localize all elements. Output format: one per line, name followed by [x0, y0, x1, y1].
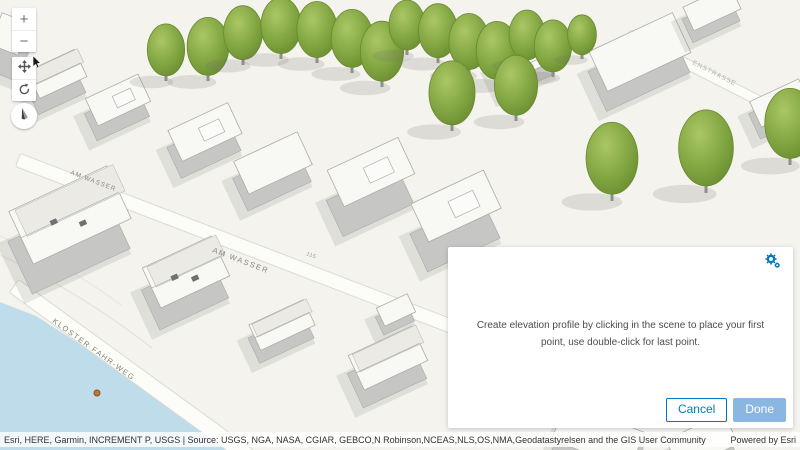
- scene-viewer: AM WASSERAM WASSER115KLOSTER FAHR-WEGENS…: [0, 0, 800, 450]
- compass-needle-icon: [14, 105, 34, 128]
- navigation-tools: [12, 57, 36, 101]
- pan-arrows-icon: [18, 60, 31, 76]
- small-marker: [94, 390, 100, 396]
- zoom-in-button[interactable]: +: [12, 8, 36, 30]
- cancel-button[interactable]: Cancel: [666, 398, 727, 422]
- powered-by-esri-link[interactable]: Powered by Esri: [730, 435, 796, 445]
- attribution-bar: Esri, HERE, Garmin, INCREMENT P, USGS | …: [0, 432, 800, 447]
- compass-button[interactable]: [11, 103, 37, 129]
- pan-button[interactable]: [12, 57, 36, 79]
- settings-button[interactable]: [761, 252, 785, 274]
- elevation-profile-panel: Create elevation profile by clicking in …: [448, 247, 793, 428]
- panel-actions: Cancel Done: [666, 398, 786, 422]
- double-gear-icon: [764, 253, 782, 273]
- zoom-controls: + −: [12, 8, 36, 52]
- attribution-sources-text: Esri, HERE, Garmin, INCREMENT P, USGS | …: [4, 435, 706, 445]
- rotate-button[interactable]: [12, 79, 36, 101]
- panel-instruction-text: Create elevation profile by clicking in …: [464, 317, 777, 351]
- zoom-out-button[interactable]: −: [12, 30, 36, 52]
- done-button[interactable]: Done: [733, 398, 786, 422]
- rotate-icon: [18, 83, 31, 99]
